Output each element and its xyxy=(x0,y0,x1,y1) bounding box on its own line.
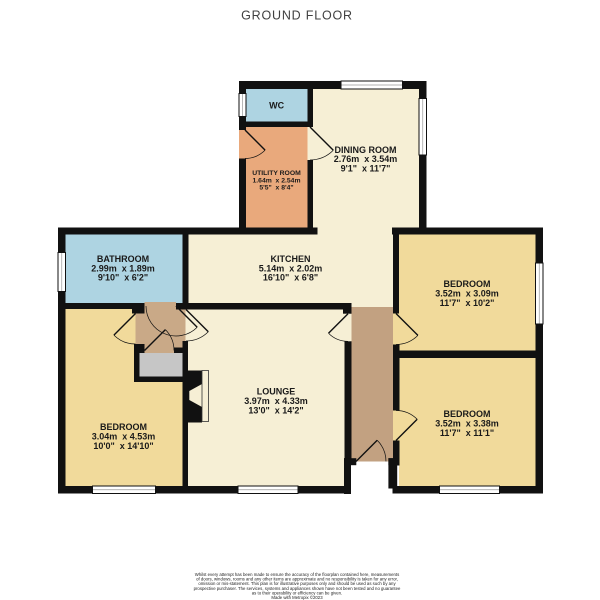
svg-text:LOUNGE: LOUNGE xyxy=(257,387,296,397)
svg-text:13'0" x 14'2": 13'0" x 14'2" xyxy=(248,406,303,416)
svg-text:16'10" x 6'8": 16'10" x 6'8" xyxy=(263,273,318,283)
svg-text:1.64m x 2.54m: 1.64m x 2.54m xyxy=(253,178,301,185)
svg-text:3.97m x 4.33m: 3.97m x 4.33m xyxy=(244,396,308,406)
svg-text:GROUND FLOOR: GROUND FLOOR xyxy=(241,9,353,23)
svg-text:5'5" x 8'4": 5'5" x 8'4" xyxy=(259,185,293,192)
svg-text:WC: WC xyxy=(269,101,284,111)
svg-text:BEDROOM: BEDROOM xyxy=(444,409,491,419)
svg-text:UTILITY ROOM: UTILITY ROOM xyxy=(252,170,301,177)
svg-text:3.52m x 3.09m: 3.52m x 3.09m xyxy=(435,289,499,299)
svg-text:9'10" x 6'2": 9'10" x 6'2" xyxy=(98,273,148,283)
svg-text:9'1" x 11'7": 9'1" x 11'7" xyxy=(341,163,391,173)
svg-text:BEDROOM: BEDROOM xyxy=(444,279,491,289)
svg-text:3.04m x 4.53m: 3.04m x 4.53m xyxy=(92,432,156,442)
svg-text:Made with Metropix ©2023: Made with Metropix ©2023 xyxy=(271,595,323,600)
svg-text:11'7" x 11'1": 11'7" x 11'1" xyxy=(440,428,494,438)
svg-text:11'7" x 10'2": 11'7" x 10'2" xyxy=(440,298,495,308)
svg-text:10'0" x 14'10": 10'0" x 14'10" xyxy=(93,441,153,451)
svg-text:BEDROOM: BEDROOM xyxy=(100,422,147,432)
svg-text:3.52m x 3.38m: 3.52m x 3.38m xyxy=(435,419,499,429)
